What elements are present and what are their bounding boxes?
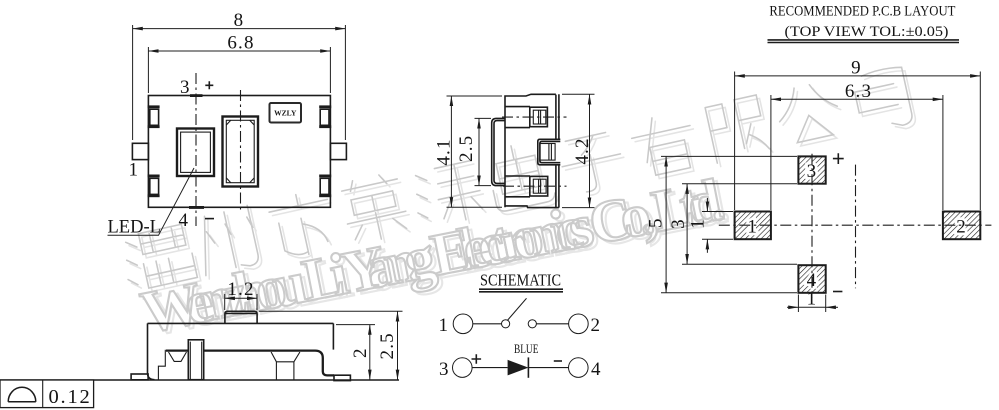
svg-text:3: 3 (668, 218, 689, 229)
svg-text:RECOMMENDED P.C.B LAYOUT: RECOMMENDED P.C.B LAYOUT (769, 4, 955, 20)
svg-text:1.2: 1.2 (227, 279, 254, 300)
svg-text:BLUE: BLUE (514, 342, 539, 356)
svg-text:5: 5 (646, 217, 667, 228)
svg-text:(TOP VIEW TOL:±0.05): (TOP VIEW TOL:±0.05) (785, 24, 949, 40)
svg-text:WZLY: WZLY (274, 108, 297, 117)
svg-text:6.3: 6.3 (845, 81, 872, 102)
svg-text:2.5: 2.5 (456, 135, 477, 162)
svg-text:2: 2 (350, 347, 371, 358)
svg-text:4.1: 4.1 (433, 138, 454, 165)
svg-text:3: 3 (180, 77, 191, 98)
svg-text:2: 2 (591, 315, 602, 336)
svg-text:LED-L: LED-L (108, 218, 161, 238)
svg-text:9: 9 (851, 58, 862, 79)
svg-text:2: 2 (956, 216, 967, 237)
svg-text:SCHEMATIC: SCHEMATIC (480, 271, 561, 290)
svg-text:2.5: 2.5 (377, 332, 398, 359)
svg-text:0.12: 0.12 (49, 386, 92, 408)
svg-text:4: 4 (591, 359, 602, 380)
svg-text:6.8: 6.8 (227, 33, 254, 54)
svg-text:8: 8 (234, 10, 245, 31)
svg-text:1: 1 (687, 218, 708, 229)
svg-text:1: 1 (129, 160, 140, 181)
svg-text:1: 1 (438, 315, 449, 336)
svg-text:4.2: 4.2 (572, 137, 593, 164)
svg-text:3: 3 (439, 359, 450, 380)
svg-text:4: 4 (179, 210, 190, 231)
svg-text:1: 1 (747, 216, 758, 237)
